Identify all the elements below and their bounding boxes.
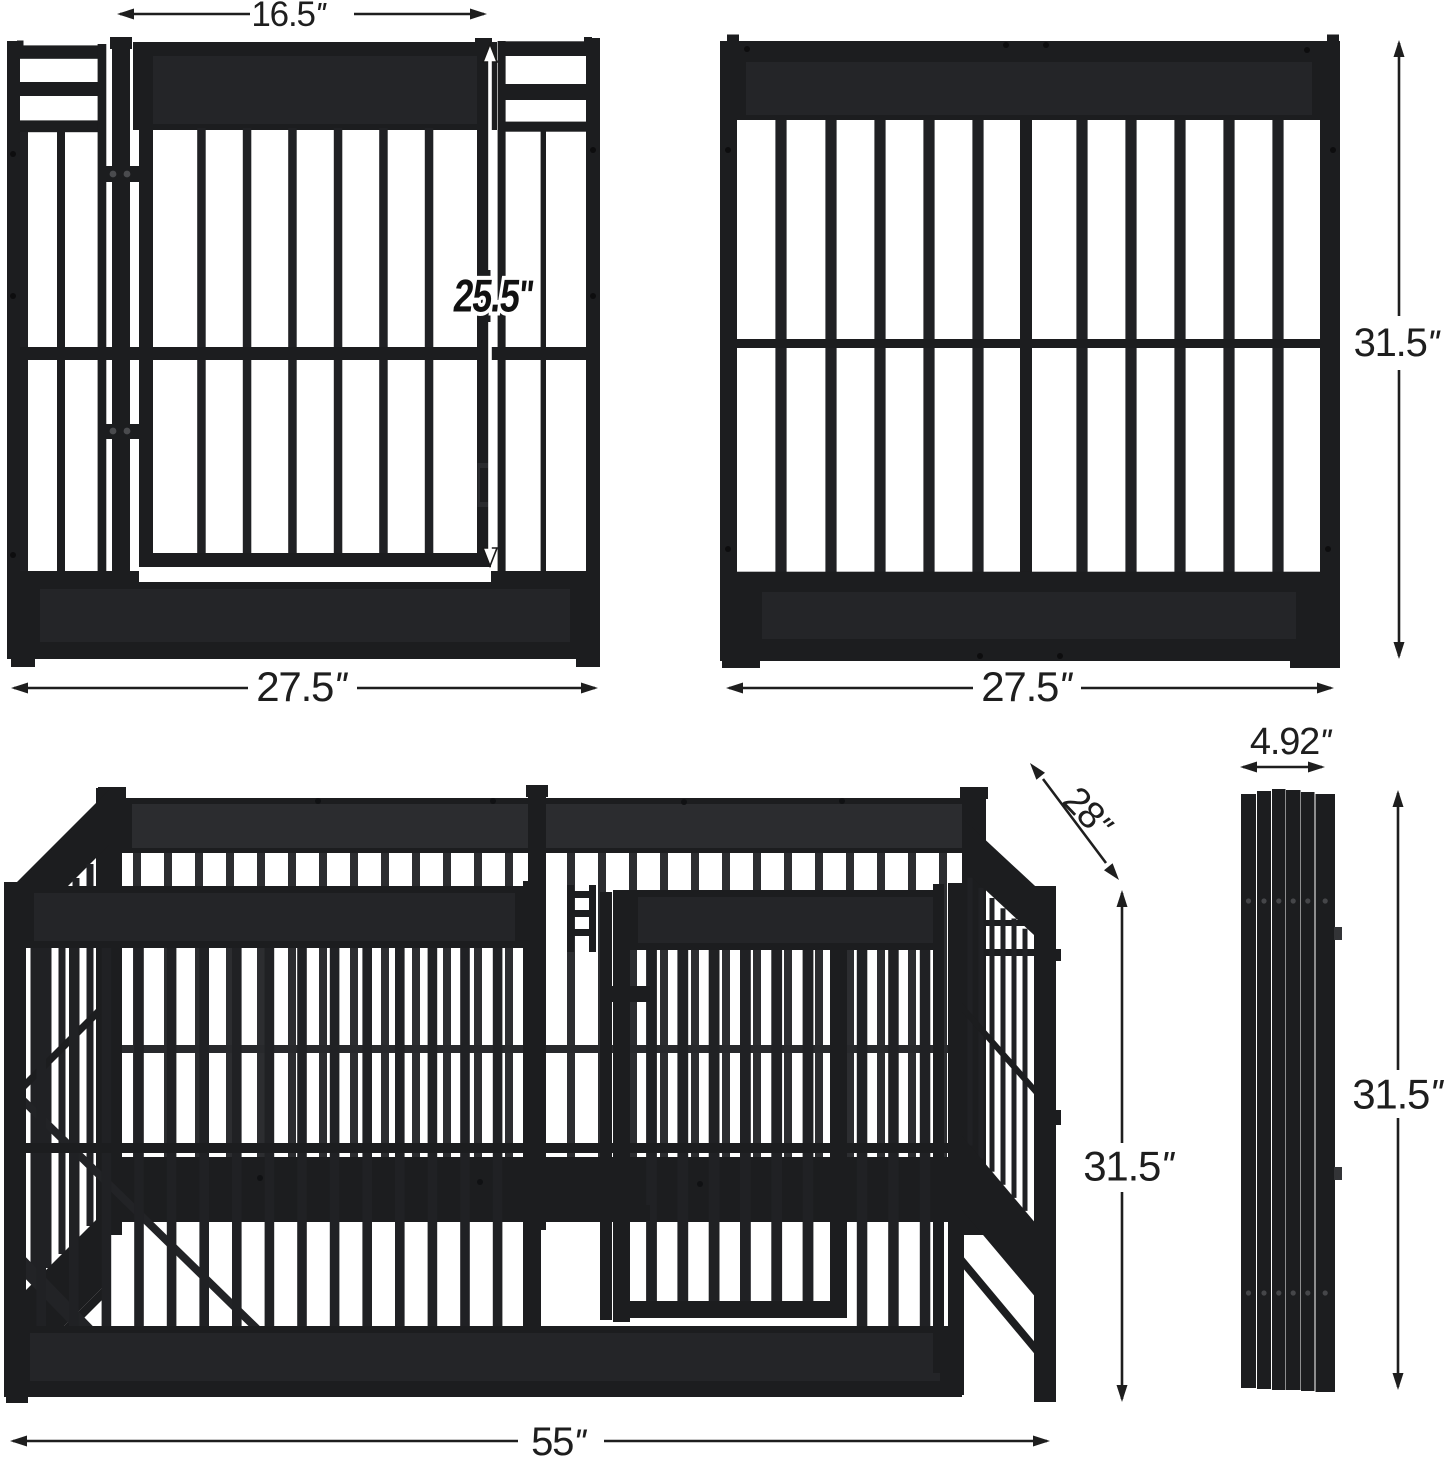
- svg-text:31.5'': 31.5'': [1354, 321, 1442, 365]
- svg-text:55'': 55'': [531, 1420, 588, 1460]
- svg-text:27.5'': 27.5'': [256, 663, 348, 710]
- svg-text:16.5'': 16.5'': [251, 0, 327, 34]
- svg-text:25.5'': 25.5'': [451, 270, 535, 321]
- svg-text:27.5'': 27.5'': [981, 663, 1073, 710]
- svg-text:4.92'': 4.92'': [1250, 721, 1333, 763]
- svg-text:31.5'': 31.5'': [1352, 1071, 1444, 1118]
- svg-text:31.5'': 31.5'': [1083, 1143, 1175, 1190]
